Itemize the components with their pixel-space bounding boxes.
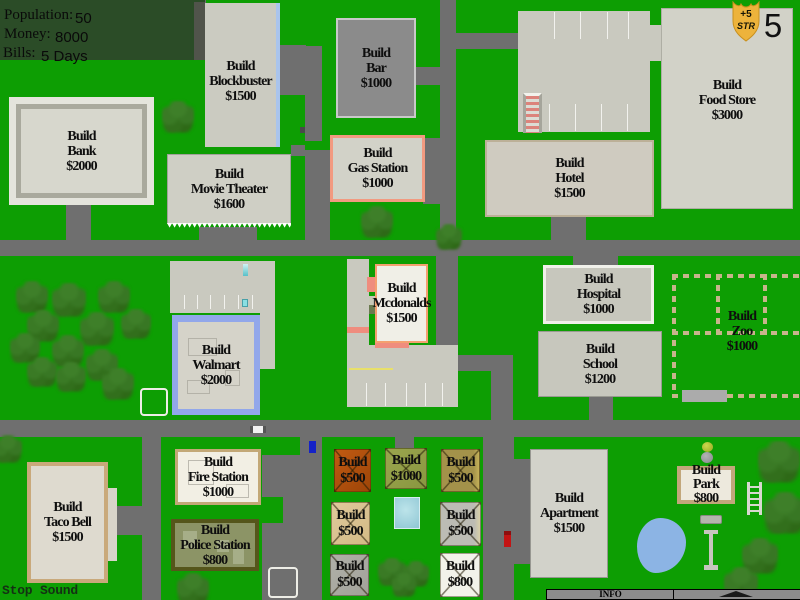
svg-text:+5: +5 — [740, 9, 752, 20]
svg-text:STR: STR — [737, 21, 756, 31]
